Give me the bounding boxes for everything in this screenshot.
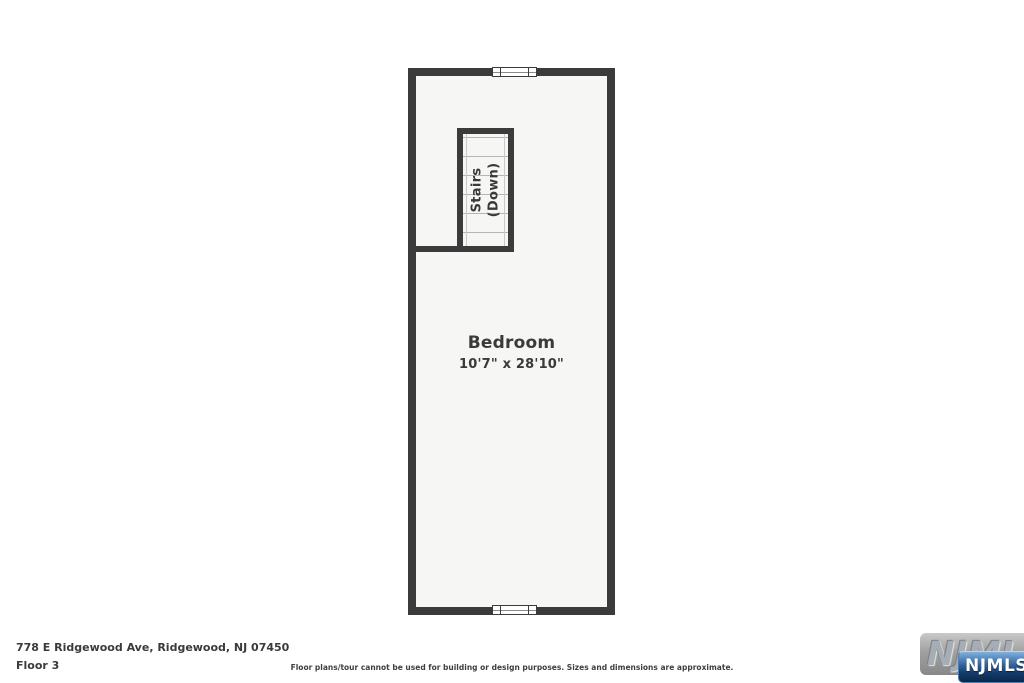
disclaimer-text: Floor plans/tour cannot be used for buil… [0, 663, 1024, 672]
window-symbol-bottom [492, 605, 537, 615]
window-jamb-left [500, 68, 501, 76]
page-background: { "plan": { "room_name": "Bedroom", "roo… [0, 0, 1024, 682]
stairs-label-line2: (Down) [485, 163, 502, 218]
njmls-badge-text: NJMLS [959, 652, 1024, 681]
property-address: 778 E Ridgewood Ave, Ridgewood, NJ 07450 [16, 641, 289, 654]
window-jamb-left [500, 606, 501, 614]
window-symbol-top [492, 67, 537, 77]
window-jamb-right [528, 606, 529, 614]
njmls-badge-logo: NJMLS [958, 651, 1024, 683]
window-jamb-right [528, 68, 529, 76]
stairs-label-box: Stairs (Down) [457, 128, 514, 252]
room-dimensions: 10'7" x 28'10" [408, 357, 615, 372]
room-label-group: Bedroom 10'7" x 28'10" [408, 333, 615, 372]
room-name: Bedroom [408, 333, 615, 353]
stairs-label: Stairs (Down) [468, 163, 502, 218]
stairs-label-line1: Stairs [468, 163, 485, 218]
